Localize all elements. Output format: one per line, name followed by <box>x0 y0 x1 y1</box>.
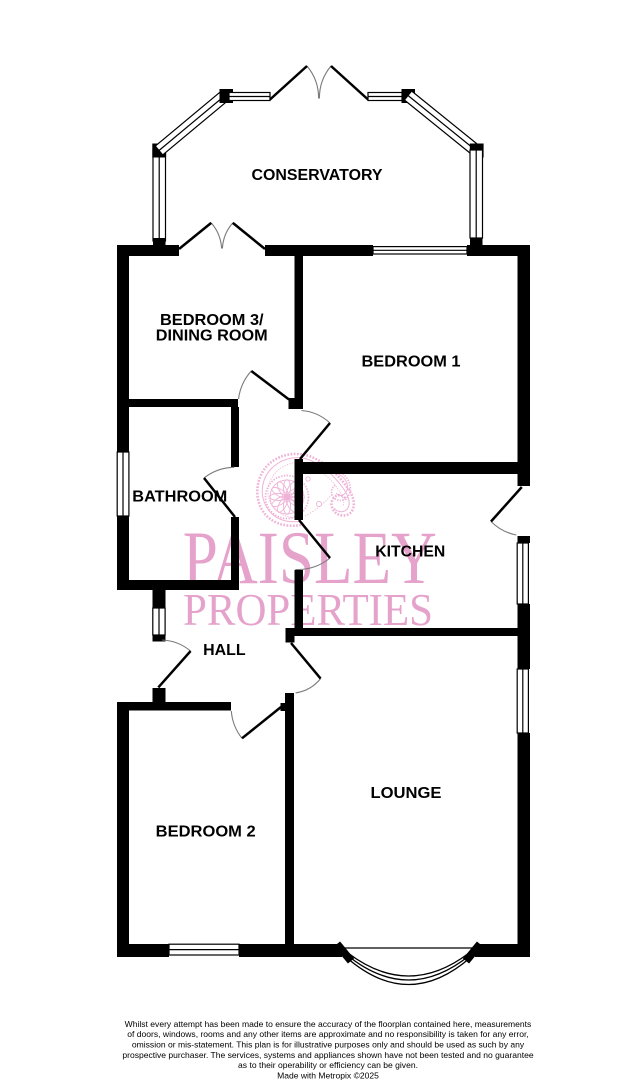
svg-text:Whilst every attempt has been: Whilst every attempt has been made to en… <box>125 1019 532 1029</box>
svg-text:prospective purchaser. The ser: prospective purchaser. The services, sys… <box>122 1050 534 1060</box>
svg-text:PROPERTIES: PROPERTIES <box>183 584 433 635</box>
svg-text:KITCHEN: KITCHEN <box>375 544 445 561</box>
svg-text:Made with Metropix ©2025: Made with Metropix ©2025 <box>277 1071 379 1080</box>
svg-text:omission or mis-statement. Thi: omission or mis-statement. This plan is … <box>132 1040 525 1050</box>
svg-text:CONSERVATORY: CONSERVATORY <box>252 167 384 184</box>
svg-text:BEDROOM 2: BEDROOM 2 <box>156 823 256 840</box>
svg-text:DINING ROOM: DINING ROOM <box>156 327 268 344</box>
svg-text:as to their operability or eff: as to their operability or efficiency ca… <box>238 1060 418 1070</box>
svg-text:BEDROOM 1: BEDROOM 1 <box>362 354 461 371</box>
svg-text:of doors, windows, rooms and a: of doors, windows, rooms and any other i… <box>127 1029 528 1039</box>
svg-text:HALL: HALL <box>203 642 246 659</box>
svg-text:LOUNGE: LOUNGE <box>371 785 442 802</box>
